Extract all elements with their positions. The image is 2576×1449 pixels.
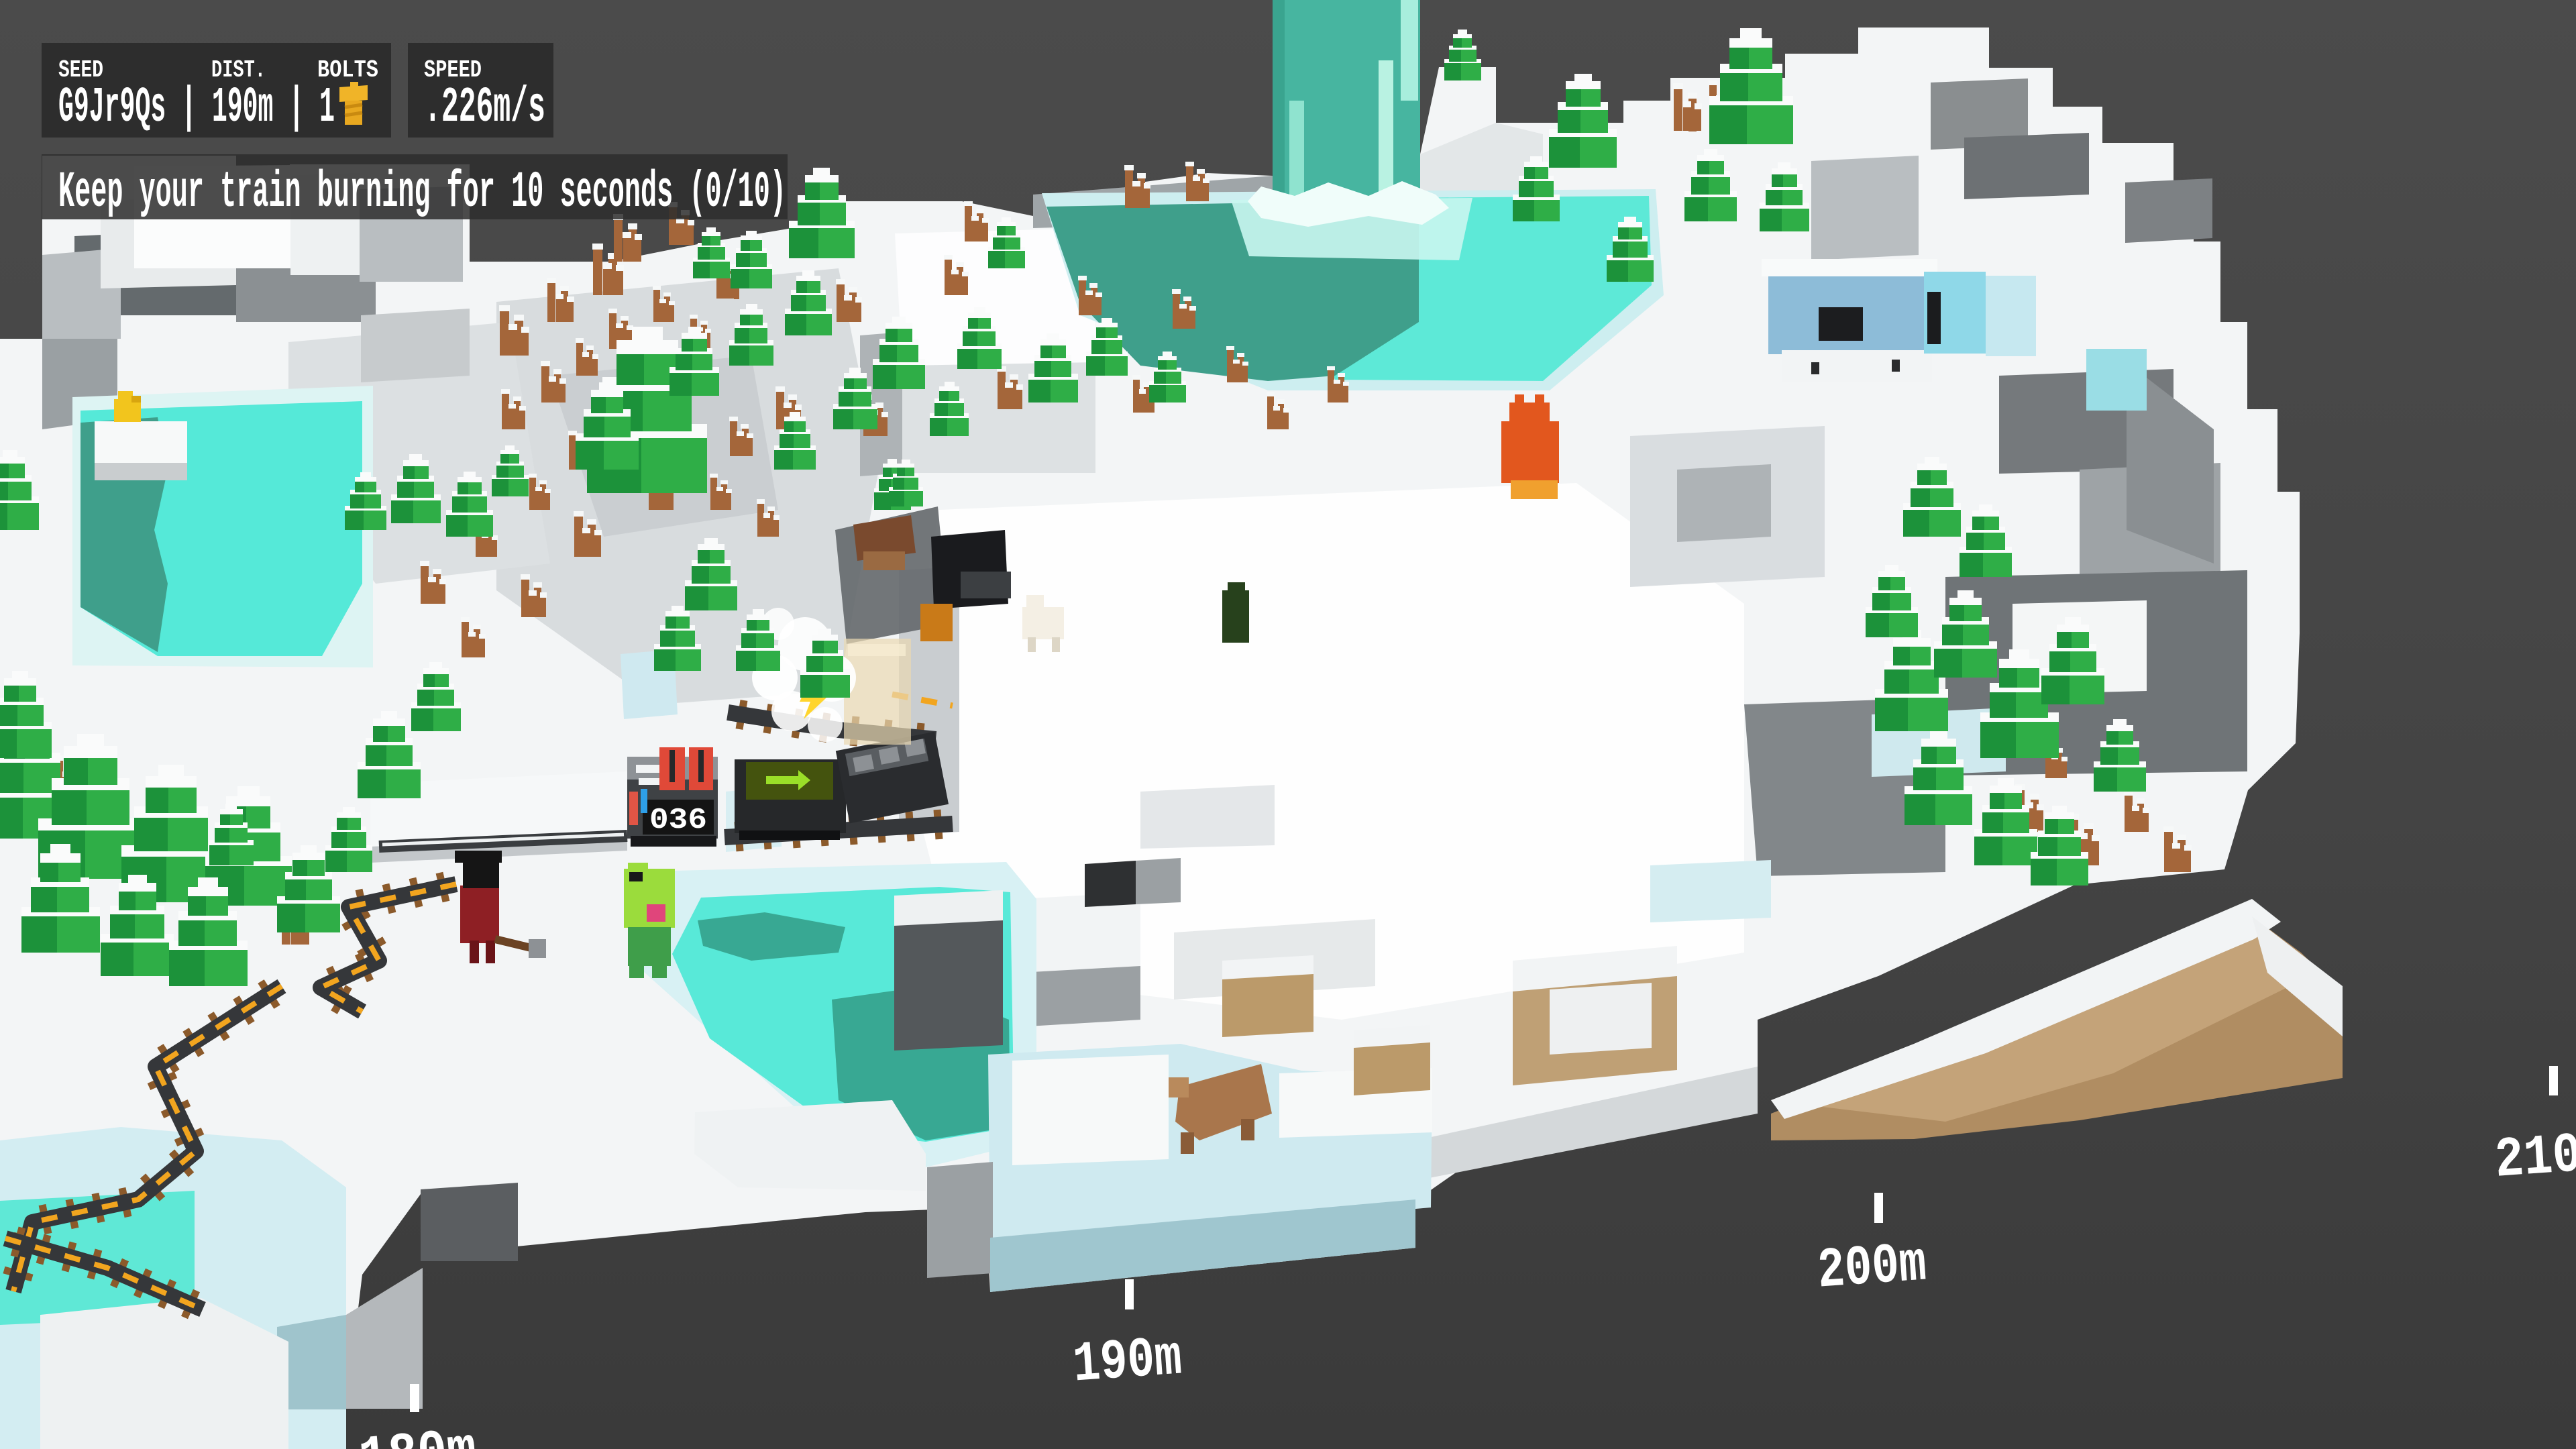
svg-text:Keep your train burning for 10: Keep your train burning for 10 seconds (…: [58, 164, 786, 221]
svg-text:210m: 210m: [2493, 1122, 2576, 1193]
svg-text:036: 036: [649, 804, 707, 837]
svg-text:200m: 200m: [1815, 1232, 1928, 1303]
svg-text:.226m/s: .226m/s: [424, 80, 545, 136]
svg-text:190m: 190m: [1071, 1326, 1184, 1397]
svg-text:G9Jr9Qs | 190m | 1: G9Jr9Qs | 190m | 1: [58, 80, 335, 136]
